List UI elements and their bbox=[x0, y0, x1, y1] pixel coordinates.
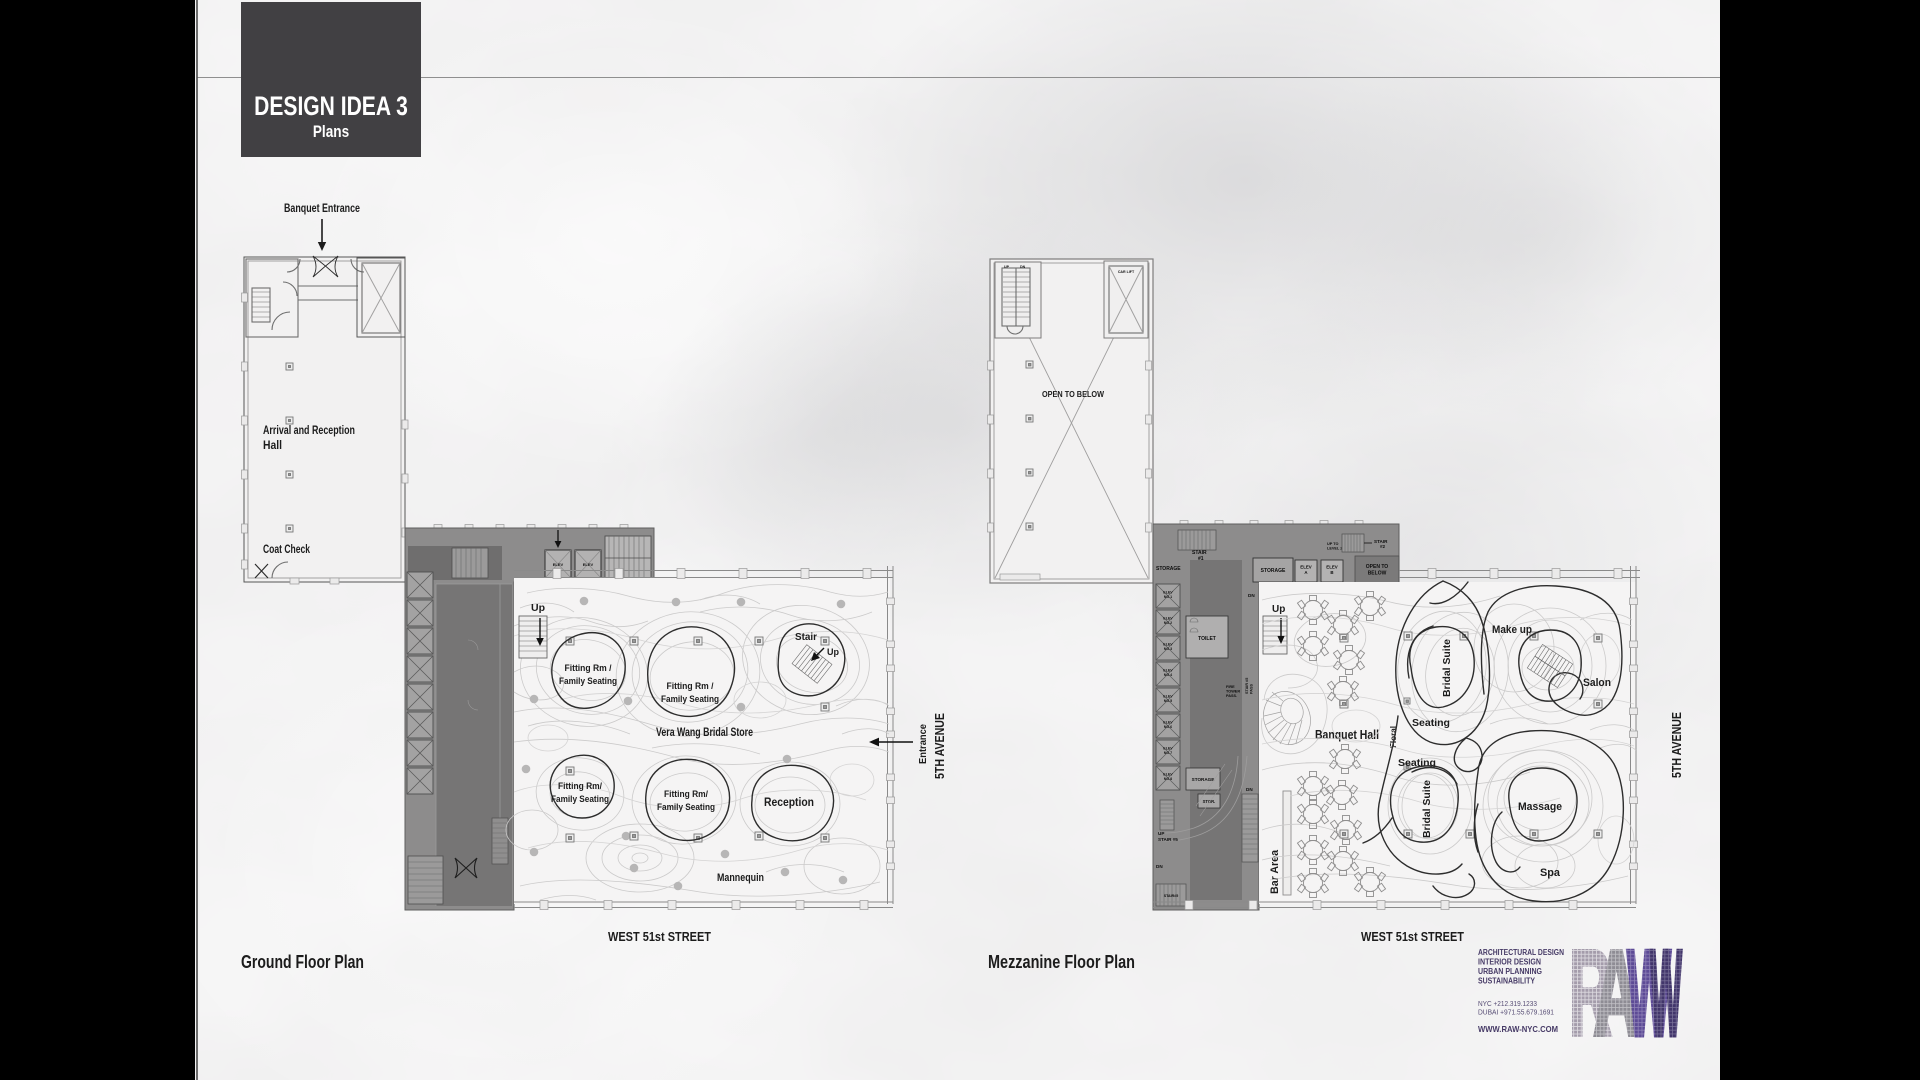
svg-text:NO.3: NO.3 bbox=[1164, 647, 1172, 651]
svg-text:Ground Floor Plan: Ground Floor Plan bbox=[241, 951, 364, 972]
svg-text:Banquet Entrance: Banquet Entrance bbox=[284, 203, 360, 215]
svg-text:NO.4: NO.4 bbox=[1164, 673, 1172, 677]
svg-text:UP: UP bbox=[1004, 265, 1010, 269]
svg-text:ELEV: ELEV bbox=[1163, 617, 1173, 621]
svg-text:Hall: Hall bbox=[263, 440, 282, 452]
svg-text:NO.5: NO.5 bbox=[1164, 699, 1172, 703]
svg-text:Arrival and Reception: Arrival and Reception bbox=[263, 425, 355, 437]
svg-text:Coat Check: Coat Check bbox=[263, 544, 310, 556]
svg-text:Make up: Make up bbox=[1492, 624, 1532, 636]
svg-text:WEST 51st STREET: WEST 51st STREET bbox=[1361, 929, 1464, 944]
svg-text:STAIR #5: STAIR #5 bbox=[1245, 678, 1249, 694]
svg-text:ELEV: ELEV bbox=[1163, 669, 1173, 673]
svg-text:CAR LIFT: CAR LIFT bbox=[1118, 270, 1135, 274]
svg-text:Fitting Rm/: Fitting Rm/ bbox=[664, 789, 708, 799]
svg-text:#1: #1 bbox=[1198, 556, 1204, 562]
svg-text:Vera Wang Bridal Store: Vera Wang Bridal Store bbox=[656, 725, 753, 739]
svg-text:UP: UP bbox=[1158, 831, 1164, 836]
svg-text:ELEV: ELEV bbox=[1163, 747, 1173, 751]
svg-text:NO.8: NO.8 bbox=[1164, 777, 1172, 781]
svg-text:ELEV: ELEV bbox=[553, 562, 564, 567]
svg-text:DN: DN bbox=[1020, 265, 1026, 269]
svg-text:Spa: Spa bbox=[1540, 867, 1561, 879]
svg-text:ELEV: ELEV bbox=[1163, 643, 1173, 647]
svg-text:FIRE: FIRE bbox=[1226, 685, 1235, 689]
svg-text:Family Seating: Family Seating bbox=[661, 694, 719, 704]
svg-text:DN: DN bbox=[1248, 593, 1255, 598]
svg-text:ELEV: ELEV bbox=[1163, 773, 1173, 777]
svg-text:STORAGE: STORAGE bbox=[1156, 566, 1181, 572]
svg-text:Family Seating: Family Seating bbox=[559, 676, 617, 686]
svg-text:ELEV: ELEV bbox=[1326, 565, 1338, 570]
svg-text:OPEN TO: OPEN TO bbox=[1366, 564, 1389, 570]
svg-text:Massage: Massage bbox=[1518, 801, 1562, 813]
svg-text:DN: DN bbox=[1246, 787, 1253, 792]
svg-text:BELOW: BELOW bbox=[1368, 571, 1387, 577]
svg-text:NO.6: NO.6 bbox=[1164, 725, 1172, 729]
svg-text:ELEV: ELEV bbox=[1163, 591, 1173, 595]
svg-text:TOWER: TOWER bbox=[1226, 690, 1240, 694]
svg-text:5TH AVENUE: 5TH AVENUE bbox=[932, 713, 947, 779]
svg-text:UP TO: UP TO bbox=[1327, 542, 1339, 546]
svg-text:OPEN TO BELOW: OPEN TO BELOW bbox=[1042, 390, 1104, 399]
svg-text:Family Seating: Family Seating bbox=[551, 794, 609, 804]
svg-text:ARCHITECTURAL DESIGN: ARCHITECTURAL DESIGN bbox=[1478, 948, 1564, 957]
svg-text:Mannequin: Mannequin bbox=[717, 872, 764, 884]
svg-text:ELEV: ELEV bbox=[1300, 565, 1312, 570]
svg-text:PASS.: PASS. bbox=[1226, 694, 1237, 698]
svg-text:Banquet Hall: Banquet Hall bbox=[1315, 728, 1379, 742]
svg-text:W: W bbox=[1650, 925, 1682, 1061]
svg-text:Fitting Rm /: Fitting Rm / bbox=[667, 681, 714, 691]
svg-text:PASS: PASS bbox=[1250, 683, 1254, 694]
svg-text:Bar Area: Bar Area bbox=[1269, 849, 1281, 894]
svg-text:TOILET: TOILET bbox=[1198, 636, 1216, 642]
svg-text:5TH AVENUE: 5TH AVENUE bbox=[1669, 712, 1684, 778]
svg-text:B: B bbox=[1330, 570, 1333, 575]
svg-text:URBAN PLANNING: URBAN PLANNING bbox=[1478, 967, 1542, 976]
svg-text:ELEV: ELEV bbox=[583, 562, 594, 567]
svg-text:Reception: Reception bbox=[764, 797, 814, 809]
svg-text:SUSTAINABILITY: SUSTAINABILITY bbox=[1478, 977, 1536, 986]
svg-text:#2: #2 bbox=[1380, 544, 1386, 549]
svg-text:Up: Up bbox=[1272, 604, 1285, 615]
svg-text:Mezzanine Floor Plan: Mezzanine Floor Plan bbox=[988, 951, 1135, 972]
svg-text:Bridal Suite: Bridal Suite bbox=[1421, 780, 1433, 838]
svg-text:LEVEL 2: LEVEL 2 bbox=[1327, 547, 1342, 551]
svg-text:Fitting Rm /: Fitting Rm / bbox=[565, 663, 612, 673]
svg-text:STAIR #5: STAIR #5 bbox=[1158, 837, 1178, 842]
svg-text:Seating: Seating bbox=[1412, 717, 1450, 729]
svg-text:NYC +212.319.1233: NYC +212.319.1233 bbox=[1478, 1001, 1537, 1008]
svg-text:Up: Up bbox=[531, 602, 545, 614]
svg-text:Bridal Suite: Bridal Suite bbox=[1441, 639, 1453, 697]
svg-text:Fitting Rm/: Fitting Rm/ bbox=[558, 781, 602, 791]
svg-text:NO.2: NO.2 bbox=[1164, 621, 1172, 625]
svg-text:ELEV: ELEV bbox=[1163, 721, 1173, 725]
svg-text:Stair: Stair bbox=[795, 631, 817, 643]
svg-text:STORAGE: STORAGE bbox=[1192, 777, 1215, 782]
svg-text:Up: Up bbox=[827, 647, 839, 657]
svg-text:DN: DN bbox=[1156, 864, 1163, 869]
svg-text:ELEV: ELEV bbox=[1163, 695, 1173, 699]
svg-text:DUBAI +971.55.679.1691: DUBAI +971.55.679.1691 bbox=[1478, 1010, 1554, 1017]
svg-text:NO.1: NO.1 bbox=[1164, 595, 1172, 599]
svg-text:INTERIOR DESIGN: INTERIOR DESIGN bbox=[1478, 958, 1541, 967]
svg-text:NO.7: NO.7 bbox=[1164, 751, 1172, 755]
svg-text:Entrance: Entrance bbox=[917, 724, 929, 764]
svg-text:WEST 51st STREET: WEST 51st STREET bbox=[608, 929, 711, 944]
svg-text:WWW.RAW-NYC.COM: WWW.RAW-NYC.COM bbox=[1478, 1024, 1558, 1034]
svg-text:Family Seating: Family Seating bbox=[657, 802, 715, 812]
svg-text:Salon: Salon bbox=[1583, 677, 1611, 689]
svg-text:STORAGE: STORAGE bbox=[1261, 568, 1286, 574]
svg-text:STAIR#5: STAIR#5 bbox=[1164, 894, 1179, 898]
